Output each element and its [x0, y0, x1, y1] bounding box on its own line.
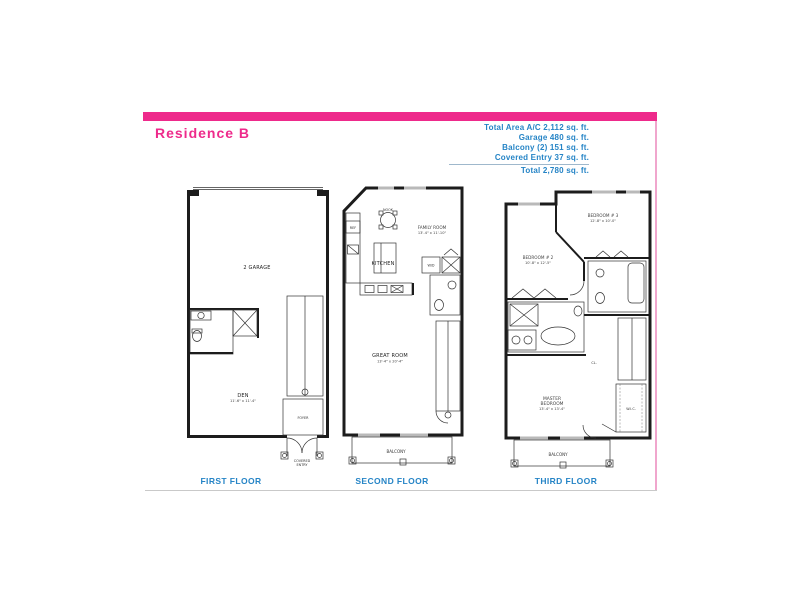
floorplan-sheet: Residence B Total Area A/C 2,112 sq. ft.… — [0, 0, 800, 600]
wic-label: W.I.C. — [626, 407, 636, 411]
first-floor-bath — [190, 310, 233, 354]
third-floor-caption: THIRD FLOOR — [506, 476, 626, 486]
family-room-dims: 13'-4" x 11'-10" — [418, 231, 447, 235]
third-floor-stairs — [618, 318, 646, 380]
bedroom3-dims: 12'-8" x 10'-0" — [590, 219, 616, 223]
summary-balcony: Balcony (2) 151 sq. ft. — [449, 143, 589, 153]
wd-label: W/D — [427, 264, 434, 268]
ref-label: REF — [350, 226, 356, 230]
walk-in-closet — [602, 384, 646, 432]
third-floor-plan: BEDROOM # 3 12'-8" x 10'-0" BEDROOM # 2 … — [500, 186, 656, 471]
bedroom2-label: BEDROOM # 2 — [523, 255, 554, 260]
den-dims: 11'-6" x 11'-4" — [230, 399, 256, 403]
nook-table — [379, 211, 397, 229]
third-floor-plan-drawing: BEDROOM # 3 12'-8" x 10'-0" BEDROOM # 2 … — [500, 186, 656, 471]
first-floor-plan-drawing: 2 GARAGE DEN 11'-6" x 11'-4" FOYER COVER… — [183, 186, 333, 471]
first-floor-plan: 2 GARAGE DEN 11'-6" x 11'-4" FOYER COVER… — [183, 186, 333, 471]
second-floor-plan: NOOK FAMILY ROOM 13'-4" x 11'-10" REF KI… — [338, 183, 468, 473]
nook-label: NOOK — [383, 208, 394, 212]
page-title: Residence B — [155, 125, 250, 141]
second-balcony-label: BALCONY — [386, 449, 406, 454]
second-floor-caption: SECOND FLOOR — [332, 476, 452, 486]
master-bedroom-dims: 13'-4" x 13'-4" — [539, 407, 565, 411]
area-summary: Total Area A/C 2,112 sq. ft. Garage 480 … — [449, 123, 589, 176]
bifold-closet-doors — [512, 289, 556, 298]
summary-covered-entry: Covered Entry 37 sq. ft. — [449, 153, 589, 165]
summary-total-area-ac: Total Area A/C 2,112 sq. ft. — [449, 123, 589, 133]
kitchen-island — [374, 243, 396, 273]
storage-closet — [233, 310, 257, 336]
second-floor-stairs — [436, 321, 460, 423]
great-room-label: GREAT ROOM — [372, 353, 408, 359]
laundry-closet — [422, 249, 460, 273]
top-accent-bar — [143, 112, 657, 121]
bottom-divider-rule — [145, 490, 657, 491]
family-room-label: FAMILY ROOM — [418, 225, 447, 230]
summary-garage: Garage 480 sq. ft. — [449, 133, 589, 143]
bedroom2-dims: 10'-8" x 12'-5" — [525, 261, 551, 265]
summary-total: Total 2,780 sq. ft. — [449, 166, 589, 176]
kitchen-label: KITCHEN — [371, 261, 394, 267]
great-room-dims: 13'-4" x 20'-4" — [377, 360, 403, 364]
second-floor-plan-drawing: NOOK FAMILY ROOM 13'-4" x 11'-10" REF KI… — [338, 183, 468, 473]
third-balcony-label: BALCONY — [548, 452, 568, 457]
bedroom3-label: BEDROOM # 3 — [588, 213, 619, 218]
master-bath — [508, 302, 584, 352]
hall-bath — [588, 251, 646, 312]
covered-entry-label-2: ENTRY — [297, 463, 309, 467]
garage-label: 2 GARAGE — [243, 265, 270, 271]
interior-walls — [506, 204, 650, 356]
first-floor-stairs — [287, 296, 323, 396]
covered-entry — [281, 438, 323, 459]
first-floor-caption: FIRST FLOOR — [171, 476, 291, 486]
closet-label: CL. — [591, 361, 596, 365]
powder-room — [430, 275, 460, 315]
foyer-label: FOYER — [297, 416, 309, 420]
